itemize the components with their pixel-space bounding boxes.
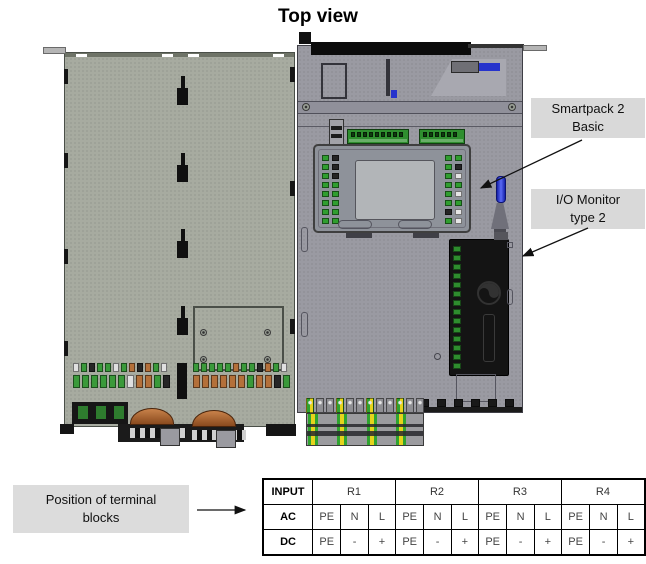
terminal-strip-groupA-top — [73, 363, 167, 372]
pe-stripe — [367, 414, 377, 445]
figure-title: Top view — [198, 6, 438, 28]
cell — [445, 155, 452, 161]
cell — [416, 398, 424, 413]
cell — [429, 132, 433, 137]
cell — [332, 182, 339, 188]
table-cell: N — [590, 505, 617, 530]
cell — [454, 399, 463, 407]
cutout — [398, 220, 432, 229]
cell — [332, 200, 339, 206]
pe-stripe — [396, 414, 406, 445]
cell — [455, 164, 462, 170]
cell — [455, 191, 462, 197]
button-column — [322, 155, 329, 224]
terminal-strip — [419, 129, 465, 144]
pe-stripe — [337, 414, 347, 445]
cell — [332, 173, 339, 179]
button-column — [445, 155, 452, 224]
cell — [136, 375, 143, 388]
connector-slot — [96, 406, 106, 419]
mounting-flange-right — [523, 45, 547, 51]
table-cell: - — [424, 530, 451, 556]
terminal-strip — [347, 129, 409, 144]
right-chassis-panel — [297, 45, 523, 413]
bottom-bracket-outline — [456, 374, 496, 402]
table-cell: PE — [313, 530, 341, 556]
table-cell: PE — [395, 530, 423, 556]
cell — [393, 132, 397, 137]
screw-icon — [302, 103, 310, 111]
table-cell: N — [507, 505, 534, 530]
table-cell: PE — [561, 505, 589, 530]
cell — [193, 375, 200, 388]
cell — [274, 375, 281, 388]
smartpack-controller — [313, 144, 471, 233]
cell — [137, 363, 143, 372]
cell — [127, 375, 134, 388]
din-body — [306, 413, 424, 446]
keyhole-slot — [177, 306, 189, 336]
cell — [91, 375, 98, 388]
cell — [233, 363, 239, 372]
cell — [453, 246, 461, 252]
cell — [220, 375, 227, 388]
terminal-table: INPUTR1R2R3R4ACPENLPENLPENLPENLDCPE-+PE-… — [262, 478, 646, 556]
top-nub — [299, 32, 311, 44]
table-cell: L — [451, 505, 478, 530]
cell — [346, 398, 354, 413]
arrow-to-io-monitor — [523, 228, 588, 256]
table-cell: N — [341, 505, 368, 530]
eltek-logo — [474, 278, 504, 308]
cell — [356, 398, 364, 413]
cell — [423, 132, 427, 137]
cell — [105, 363, 111, 372]
edge-tab — [64, 341, 68, 356]
cell — [306, 398, 314, 413]
io-monitor-label: I/O Monitor type 2 — [531, 189, 645, 229]
connector-housing — [72, 402, 128, 424]
blue-connector — [479, 63, 500, 71]
din-terminal-block — [306, 398, 424, 448]
cell — [145, 375, 152, 388]
top-edge-line — [468, 44, 524, 48]
cell — [100, 375, 107, 388]
center-slot — [177, 363, 187, 399]
terminal-block-gray — [160, 428, 180, 446]
blue-marker — [391, 90, 397, 98]
cell — [118, 375, 125, 388]
cell — [455, 173, 462, 179]
connector-slot — [78, 406, 88, 419]
antenna-cone — [491, 203, 509, 229]
table-cell: PE — [561, 530, 589, 556]
cell — [445, 209, 452, 215]
cell — [435, 132, 439, 137]
cell — [113, 363, 119, 372]
cell — [366, 398, 374, 413]
smartpack-label-line1: Smartpack 2 — [552, 100, 625, 118]
cell — [455, 218, 462, 224]
cell — [211, 375, 218, 388]
cell — [471, 399, 480, 407]
cell — [332, 191, 339, 197]
cell — [453, 318, 461, 324]
edge-mark — [507, 289, 513, 305]
unit-tab — [413, 233, 439, 238]
io-monitor-label-line2: type 2 — [570, 209, 605, 227]
cell — [217, 363, 223, 372]
cutout — [301, 227, 308, 252]
cell — [326, 398, 334, 413]
top-black-bar — [311, 42, 471, 55]
cell — [453, 309, 461, 315]
access-plate — [193, 306, 284, 371]
cell — [209, 363, 215, 372]
cell — [322, 191, 329, 197]
cell — [399, 132, 403, 137]
cell — [381, 132, 385, 137]
terminal-strip-groupB-bottom — [193, 375, 290, 388]
vent-dash — [162, 54, 173, 57]
io-terminal-column — [453, 246, 461, 369]
cable-gland — [451, 61, 479, 73]
cell — [265, 363, 271, 372]
left-cover-panel — [64, 52, 295, 427]
cell — [455, 200, 462, 206]
divider-band — [298, 101, 522, 114]
table-cell: AC — [263, 505, 313, 530]
cell — [256, 375, 263, 388]
cell — [109, 375, 116, 388]
cell — [363, 132, 367, 137]
table-cell: + — [368, 530, 395, 556]
left-foot — [60, 424, 74, 434]
cell — [488, 399, 497, 407]
cell — [351, 132, 355, 137]
din-band — [307, 424, 423, 427]
edge-tab — [290, 319, 295, 334]
edge-tab — [290, 181, 295, 196]
cell — [257, 363, 263, 372]
cell — [396, 398, 404, 413]
table-cell: PE — [478, 505, 506, 530]
vent-dash — [76, 54, 87, 57]
cell — [247, 375, 254, 388]
table-cell: - — [507, 530, 534, 556]
table-cell: INPUT — [263, 479, 313, 505]
cell — [369, 132, 373, 137]
edge-tab — [64, 249, 68, 264]
terminal-position-label: Position of terminal blocks — [13, 485, 189, 533]
cell — [453, 264, 461, 270]
terminal-strip-groupA-bottom — [73, 375, 170, 388]
keyhole-slot — [177, 229, 189, 259]
din-clamp-row — [306, 398, 424, 413]
cell — [453, 291, 461, 297]
cell — [332, 209, 339, 215]
cell — [73, 363, 79, 372]
table-cell: L — [617, 505, 645, 530]
cell — [249, 363, 255, 372]
screw-icon — [508, 103, 516, 111]
hole — [434, 353, 441, 360]
io-monitor-label-line1: I/O Monitor — [556, 191, 620, 209]
pin — [386, 59, 390, 96]
screw-icon — [264, 356, 271, 363]
edge-mark — [507, 242, 513, 248]
panel-top-edge — [65, 53, 294, 57]
edge-tab — [64, 153, 68, 168]
cell — [163, 375, 170, 388]
vent-dash — [188, 54, 199, 57]
cell — [89, 363, 95, 372]
table-cell: PE — [395, 505, 423, 530]
cell — [441, 132, 445, 137]
keyhole-slot — [177, 153, 189, 183]
smartpack-label: Smartpack 2 Basic — [531, 98, 645, 138]
cell — [447, 132, 451, 137]
din-band — [307, 431, 423, 436]
cell — [455, 155, 462, 161]
cell — [445, 182, 452, 188]
cell — [238, 375, 245, 388]
table-cell: R1 — [313, 479, 396, 505]
cell — [322, 182, 329, 188]
smartpack-label-line2: Basic — [572, 118, 604, 136]
screw-icon — [264, 329, 271, 336]
cell — [281, 363, 287, 372]
cell — [153, 363, 159, 372]
cell — [73, 375, 80, 388]
cell — [505, 399, 514, 407]
terminal-strip-groupB-top — [193, 363, 287, 372]
figure-top-view: Top view — [0, 0, 646, 564]
cell — [445, 200, 452, 206]
bracket — [321, 63, 347, 99]
cell — [445, 191, 452, 197]
cell — [445, 164, 452, 170]
cell — [283, 375, 290, 388]
cell — [332, 155, 339, 161]
controller-display — [355, 160, 435, 220]
table-cell: R2 — [395, 479, 478, 505]
cell — [201, 363, 207, 372]
unit-tab — [346, 233, 372, 238]
cell — [453, 327, 461, 333]
cell — [455, 182, 462, 188]
end-bracket — [266, 424, 296, 436]
cell — [387, 132, 391, 137]
screw-icon — [200, 329, 207, 336]
cell — [437, 399, 446, 407]
table-cell: N — [424, 505, 451, 530]
cell — [453, 336, 461, 342]
plunger — [329, 119, 344, 146]
cell — [455, 209, 462, 215]
cell — [445, 173, 452, 179]
button-column — [455, 155, 462, 224]
cell — [336, 398, 344, 413]
cell — [453, 255, 461, 261]
cell — [322, 209, 329, 215]
cell — [357, 132, 361, 137]
cell — [81, 363, 87, 372]
terminal-block-gray — [216, 430, 236, 448]
cell — [332, 164, 339, 170]
cell — [241, 363, 247, 372]
cell — [322, 218, 329, 224]
terminal-position-line1: Position of terminal — [46, 491, 157, 509]
table-cell: L — [368, 505, 395, 530]
keyhole-slot — [177, 76, 189, 106]
cell — [453, 132, 457, 137]
table-cell: + — [451, 530, 478, 556]
cell — [453, 345, 461, 351]
cell — [322, 164, 329, 170]
table-cell: DC — [263, 530, 313, 556]
pe-stripe — [308, 414, 318, 445]
cell — [225, 363, 231, 372]
cell — [82, 375, 89, 388]
cell — [265, 375, 272, 388]
cell — [453, 354, 461, 360]
logo-text-block — [483, 314, 495, 362]
connector-slot — [114, 406, 124, 419]
cell — [453, 363, 461, 369]
vent-dash — [273, 54, 284, 57]
cell — [322, 173, 329, 179]
cutout — [338, 220, 372, 229]
table-cell: PE — [313, 505, 341, 530]
edge-tab — [290, 67, 295, 82]
cell — [121, 363, 127, 372]
terminal-position-line2: blocks — [83, 509, 120, 527]
io-connector-nub — [494, 232, 508, 240]
cell — [445, 218, 452, 224]
cell — [376, 398, 384, 413]
cell — [316, 398, 324, 413]
cell — [322, 200, 329, 206]
table-cell: R4 — [561, 479, 645, 505]
cell — [161, 363, 167, 372]
table-cell: PE — [478, 530, 506, 556]
screw-icon — [200, 356, 207, 363]
cell — [386, 398, 394, 413]
table-cell: + — [617, 530, 645, 556]
cell — [406, 398, 414, 413]
cell — [193, 363, 199, 372]
table-cell: R3 — [478, 479, 561, 505]
cell — [453, 273, 461, 279]
edge-tab — [64, 69, 68, 84]
cell — [453, 300, 461, 306]
cell — [375, 132, 379, 137]
cell — [273, 363, 279, 372]
cell — [453, 282, 461, 288]
cutout — [301, 312, 308, 337]
table-cell: L — [534, 505, 561, 530]
cell — [97, 363, 103, 372]
cell — [229, 375, 236, 388]
cell — [154, 375, 161, 388]
notched-strip — [418, 399, 522, 412]
table-cell: + — [534, 530, 561, 556]
cell — [145, 363, 151, 372]
mounting-flange-left — [43, 47, 66, 54]
antenna-shaft — [496, 176, 506, 203]
io-monitor-unit — [449, 239, 509, 376]
table-cell: - — [590, 530, 617, 556]
button-column — [332, 155, 339, 224]
cell — [322, 155, 329, 161]
table-cell: - — [341, 530, 368, 556]
cell — [129, 363, 135, 372]
cell — [202, 375, 209, 388]
